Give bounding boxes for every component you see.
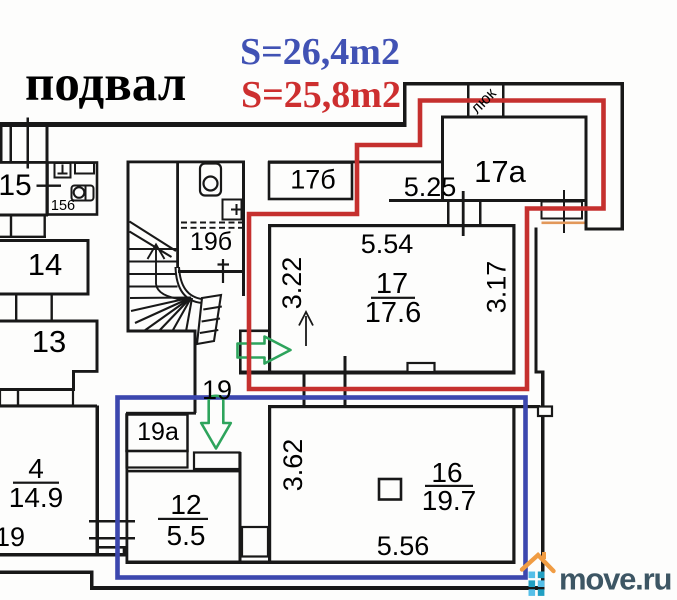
svg-text:156: 156 xyxy=(51,198,75,214)
svg-text:move.ru: move.ru xyxy=(559,562,671,597)
svg-text:5.54: 5.54 xyxy=(361,229,414,259)
svg-text:19: 19 xyxy=(0,522,25,552)
svg-text:19.7: 19.7 xyxy=(422,485,477,516)
svg-text:5.25: 5.25 xyxy=(404,172,457,202)
svg-text:3.22: 3.22 xyxy=(277,257,307,310)
svg-text:17a: 17a xyxy=(474,154,526,189)
svg-text:14.9: 14.9 xyxy=(9,482,64,513)
svg-text:12: 12 xyxy=(170,489,201,520)
svg-text:4: 4 xyxy=(28,453,44,484)
svg-text:14: 14 xyxy=(28,247,62,282)
svg-text:16: 16 xyxy=(431,457,462,488)
svg-text:19: 19 xyxy=(202,375,232,405)
svg-text:17.6: 17.6 xyxy=(365,297,421,329)
svg-text:13: 13 xyxy=(32,324,66,359)
svg-text:17: 17 xyxy=(376,268,408,300)
svg-text:19б: 19б xyxy=(190,228,232,256)
svg-text:S=25,8m2: S=25,8m2 xyxy=(241,74,401,116)
svg-text:3.17: 3.17 xyxy=(482,261,512,314)
svg-text:19a: 19a xyxy=(137,418,179,446)
svg-text:17б: 17б xyxy=(290,165,336,195)
svg-text:15: 15 xyxy=(0,169,32,202)
svg-text:3.62: 3.62 xyxy=(278,439,308,492)
svg-text:5.56: 5.56 xyxy=(377,531,430,561)
svg-text:5.5: 5.5 xyxy=(167,520,206,551)
svg-text:подвал: подвал xyxy=(25,56,186,112)
svg-text:S=26,4m2: S=26,4m2 xyxy=(240,31,400,73)
